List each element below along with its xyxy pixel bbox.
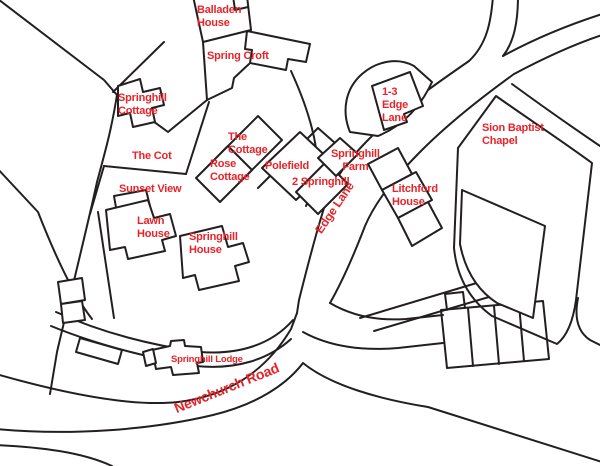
- road-line: [577, 298, 600, 346]
- terrace-divider: [468, 308, 473, 366]
- map-label-springhill-lodge: Springhill Lodge: [171, 354, 243, 365]
- street-map: Balladen House Spring Croft Springhill C…: [0, 0, 600, 466]
- boundary-line: [0, 0, 117, 95]
- map-label-litchford-house: Litchford House: [392, 183, 438, 209]
- map-label-sunset-view: Sunset View: [119, 183, 181, 196]
- road-line: [469, 0, 493, 61]
- map-label-rose-cottage: Rose Cottage: [210, 158, 250, 184]
- terrace-divider: [494, 306, 499, 364]
- road-line: [503, 0, 518, 56]
- building-outline: [76, 338, 122, 364]
- map-label-springhill-cottage: Springhill Cottage: [118, 92, 167, 118]
- map-label-polefield: Polefield: [265, 160, 309, 173]
- map-linework: [0, 0, 600, 466]
- road-line: [503, 14, 600, 56]
- map-label-sion-baptist-chapel: Sion Baptist Chapel: [482, 122, 544, 148]
- map-label-springhill-farm: Springhill Farm: [331, 148, 380, 174]
- boundary-line: [207, 64, 249, 100]
- road-junction-line: [303, 332, 443, 349]
- boundary-line: [247, 0, 251, 30]
- map-label-lawn-house: Lawn House: [137, 215, 170, 241]
- map-label-1-3-edge-lane: 1-3 Edge Lane: [382, 86, 408, 125]
- building-bungalow-outbuilding: [58, 278, 85, 304]
- map-label-the-cot: The Cot: [132, 150, 172, 163]
- boundary-line: [90, 166, 104, 214]
- road-line: [0, 445, 112, 466]
- road-line: [514, 35, 600, 74]
- building-springhill-lodge-annex: [143, 349, 156, 366]
- building-bungalow-outbuilding: [61, 301, 85, 323]
- map-label-spring-croft: Spring Croft: [207, 50, 269, 63]
- map-label-the-cottage: The Cottage: [228, 131, 268, 157]
- boundary-line: [104, 166, 186, 174]
- map-label-springhill-house: Springhill House: [189, 231, 238, 257]
- boundary-line: [186, 102, 209, 174]
- road-junction-line: [330, 303, 443, 319]
- road-newchurch-lower-edge: [0, 363, 600, 462]
- boundary-line: [203, 30, 251, 42]
- map-label-balladen-house: Balladen House: [197, 4, 241, 30]
